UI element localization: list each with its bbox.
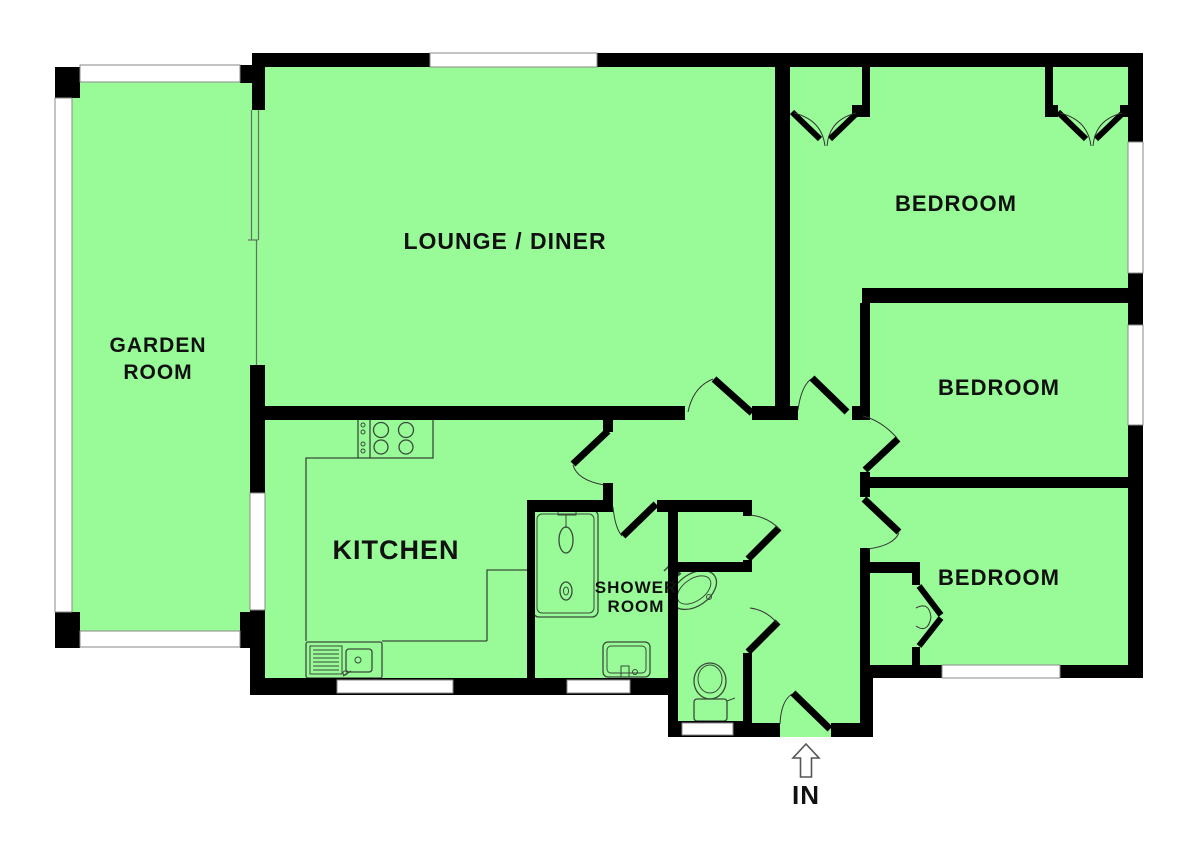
- garden-room-window-top: [80, 65, 240, 82]
- garden-room-label-line1: GARDEN: [109, 334, 206, 357]
- garden-room-window-bottom: [80, 631, 240, 647]
- lounge-window: [430, 53, 597, 67]
- kitchen-window: [337, 680, 453, 693]
- shower-room-label-line1: SHOWER: [595, 578, 678, 597]
- lounge-diner-label: LOUNGE / DINER: [403, 228, 606, 254]
- wc-floor: [678, 510, 752, 721]
- entrance-arrow-icon: [793, 744, 819, 777]
- bedroom-middle-window: [1128, 325, 1143, 425]
- shower-room-label-line2: ROOM: [608, 597, 665, 616]
- bedroom-top-label: BEDROOM: [895, 191, 1017, 216]
- bedroom-middle-label: BEDROOM: [938, 375, 1060, 400]
- kitchen-label: KITCHEN: [333, 535, 460, 565]
- bedroom-bottom-window: [942, 665, 1060, 678]
- wc-window: [682, 723, 733, 735]
- shower-room-window: [567, 680, 630, 693]
- floor-plan-page: GARDEN ROOM LOUNGE / DINER BEDROOM BEDRO…: [0, 0, 1200, 860]
- floor-plan-svg: GARDEN ROOM LOUNGE / DINER BEDROOM BEDRO…: [0, 0, 1200, 860]
- entrance-in-label: IN: [792, 780, 820, 810]
- bedroom-top-window: [1128, 142, 1143, 273]
- bedroom-bottom-label: BEDROOM: [938, 565, 1060, 590]
- garden-room-label-line2: ROOM: [123, 361, 192, 384]
- garden-kitchen-window: [250, 493, 265, 610]
- garden-room-window-left: [55, 98, 72, 612]
